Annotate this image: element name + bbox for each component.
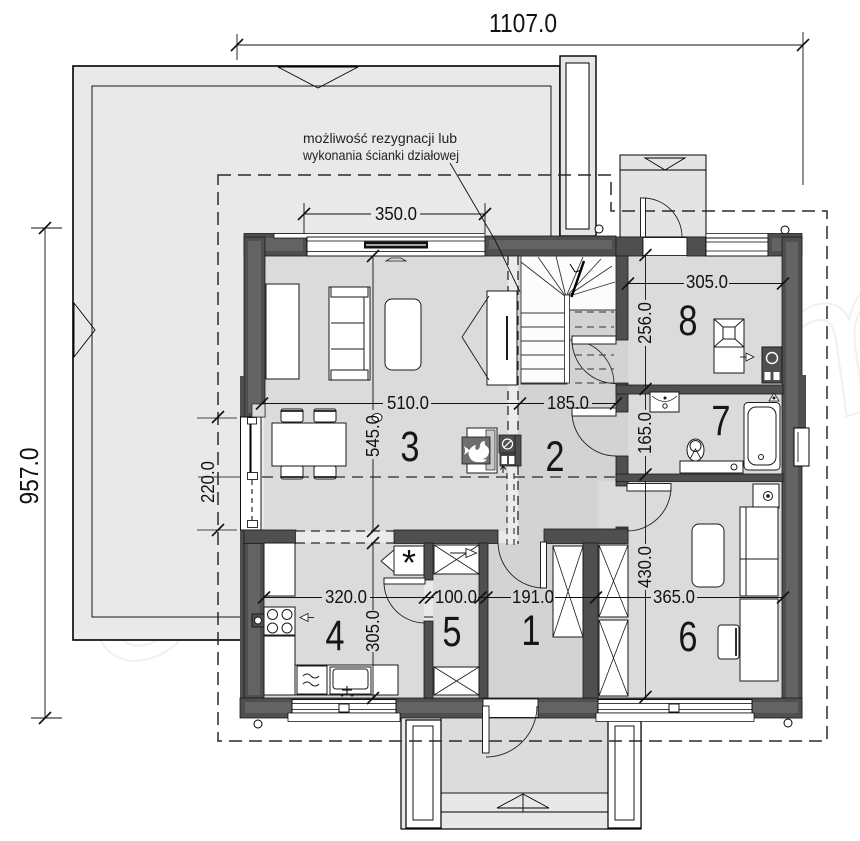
svg-text:6: 6 [678,613,697,660]
svg-text:1: 1 [521,607,540,654]
svg-text:2: 2 [545,433,564,480]
svg-text:4: 4 [325,612,344,659]
svg-text:możliwość rezygnacji lub: możliwość rezygnacji lub [303,130,457,146]
svg-text:305.0: 305.0 [686,272,728,292]
svg-text:5: 5 [442,608,461,655]
svg-text:1107.0: 1107.0 [489,8,557,38]
svg-text:545.0: 545.0 [363,415,383,457]
svg-text:957.0: 957.0 [14,448,44,505]
svg-text:165.0: 165.0 [635,412,655,454]
svg-text:wykonania ścianki działowej: wykonania ścianki działowej [302,147,459,163]
svg-text:100.0: 100.0 [435,587,477,607]
svg-text:350.0: 350.0 [375,204,417,224]
svg-text:430.0: 430.0 [635,546,655,588]
svg-text:220.0: 220.0 [198,461,218,503]
svg-text:256.0: 256.0 [635,302,655,344]
svg-text:8: 8 [678,297,697,344]
svg-text:510.0: 510.0 [387,393,429,413]
svg-text:185.0: 185.0 [547,393,589,413]
svg-text:320.0: 320.0 [325,587,367,607]
svg-text:365.0: 365.0 [653,587,695,607]
svg-text:191.0: 191.0 [512,587,554,607]
svg-text:7: 7 [711,397,730,444]
svg-text:305.0: 305.0 [363,610,383,652]
svg-text:*: * [402,542,416,583]
svg-text:3: 3 [400,423,419,470]
